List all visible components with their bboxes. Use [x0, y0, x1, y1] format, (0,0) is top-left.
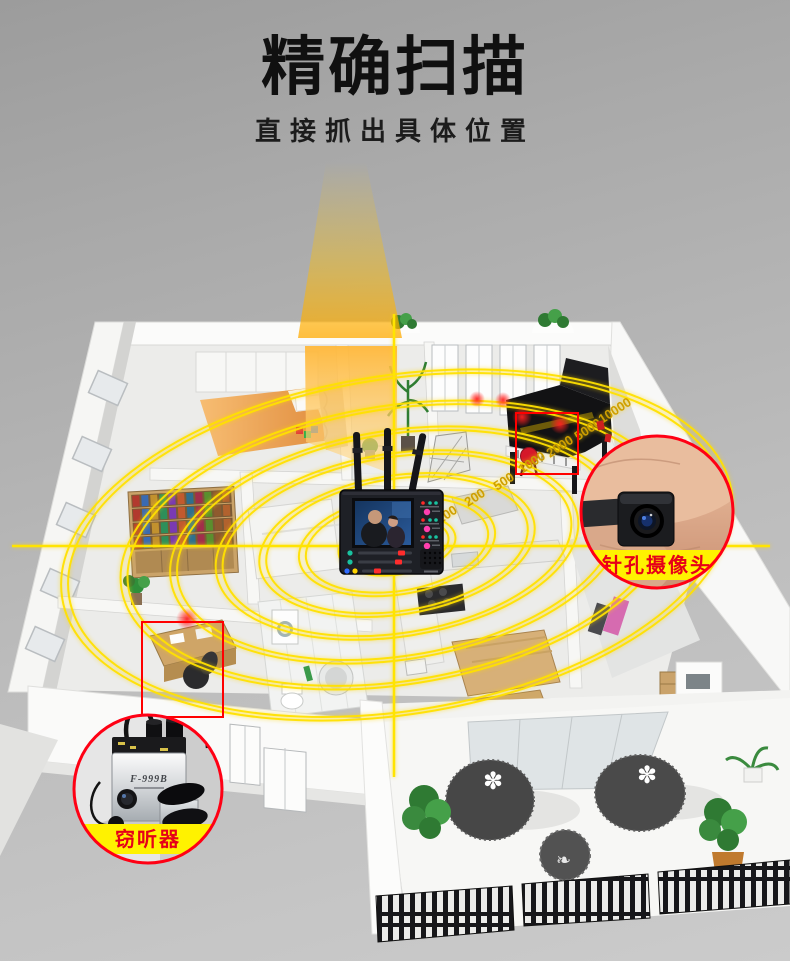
flower-icon: ✽: [637, 762, 657, 789]
page-header: 精确扫描 直接抓出具体位置: [0, 34, 790, 148]
camera-lens-icon: [630, 504, 664, 538]
device-screen: [352, 498, 414, 548]
balcony: ✽ ✽ ❧: [360, 690, 790, 942]
poster: 精确扫描 直接抓出具体位置: [0, 0, 790, 961]
chair: [405, 659, 427, 676]
wardrobe: [196, 352, 318, 392]
camera-callout-label: 针孔摄像头: [602, 553, 712, 577]
red-detection-glow: [469, 391, 485, 407]
bean-chair: ✽: [446, 760, 534, 840]
page-subtitle: 直接抓出具体位置: [0, 111, 790, 148]
page-title: 精确扫描: [0, 34, 790, 101]
red-detection-glow: [550, 414, 570, 434]
leaf-icon: ❧: [556, 850, 571, 870]
toilet: [281, 693, 303, 709]
round-table: ❧: [540, 830, 590, 880]
red-detection-glow: [176, 608, 198, 630]
device-speaker-icon: [420, 549, 442, 573]
flower-icon: ✽: [483, 768, 503, 795]
device-top-panel: [112, 737, 186, 755]
red-detection-glow: [495, 392, 511, 408]
roof-shrub-icon: [532, 309, 574, 333]
wiretap-marking: F-999B: [129, 774, 168, 785]
wiretap-callout-label: 窃听器: [115, 827, 181, 851]
bean-chair: ✽: [595, 755, 685, 831]
camera-ribbon: [577, 498, 623, 527]
